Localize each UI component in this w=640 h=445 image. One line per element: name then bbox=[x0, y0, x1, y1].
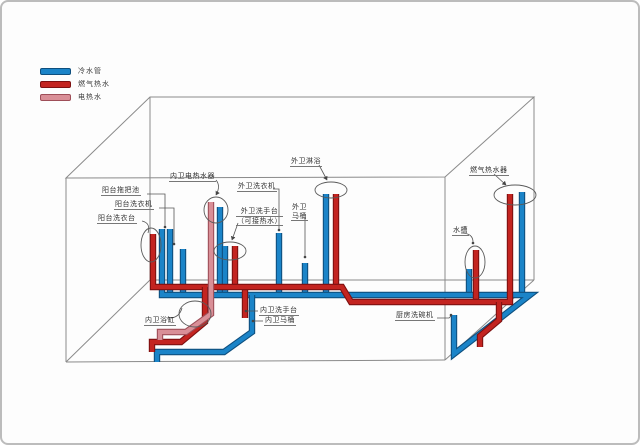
callout-outer-bath-toilet: 外卫 马桶 bbox=[291, 203, 308, 221]
legend-label-gas-hot-water: 燃气热水 bbox=[78, 81, 110, 88]
callout-outer-bath-basin: 外卫洗手台 （可接热水） bbox=[236, 207, 283, 226]
callout-gas-water-heater: 燃气热水器 bbox=[469, 166, 509, 176]
callout-outer-bath-shower: 外卫淋浴 bbox=[290, 157, 322, 167]
callout-kitchen-dishwasher: 厨房洗碗机 bbox=[395, 311, 435, 321]
legend-label-cold-water: 冷水管 bbox=[78, 68, 102, 75]
legend-swatch-cold-water bbox=[40, 68, 71, 75]
legend: 冷水管 燃气热水 电热水 bbox=[40, 68, 110, 101]
callout-inner-bath-basin: 内卫洗手台 bbox=[259, 306, 299, 316]
legend-swatch-gas-hot-water bbox=[40, 81, 71, 88]
callout-outer-bath-washer: 外卫洗衣机 bbox=[237, 182, 277, 192]
callout-balcony-mop-pool: 阳台拖把池 bbox=[101, 186, 141, 196]
callout-inner-bath-electric-heater: 内卫电热水器 bbox=[169, 172, 216, 182]
legend-label-electric-hot-water: 电热水 bbox=[78, 94, 102, 101]
callout-balcony-wash-counter: 阳台洗衣台 bbox=[97, 214, 137, 224]
callout-inner-bath-tub: 内卫浴缸 bbox=[144, 316, 176, 326]
callout-inner-bath-toilet: 内卫马桶 bbox=[264, 316, 296, 326]
callout-sink: 水槽 bbox=[452, 226, 469, 236]
legend-swatch-electric-hot-water bbox=[40, 94, 71, 101]
legend-item-gas-hot-water: 燃气热水 bbox=[40, 81, 110, 88]
legend-item-electric-hot-water: 电热水 bbox=[40, 94, 110, 101]
plumbing-diagram-page: 冷水管 燃气热水 电热水 阳台拖把池 阳台洗衣机 阳台洗衣台 内卫电热水器 外卫… bbox=[0, 0, 640, 445]
callout-balcony-washer: 阳台洗衣机 bbox=[114, 200, 154, 210]
legend-item-cold-water: 冷水管 bbox=[40, 68, 110, 75]
